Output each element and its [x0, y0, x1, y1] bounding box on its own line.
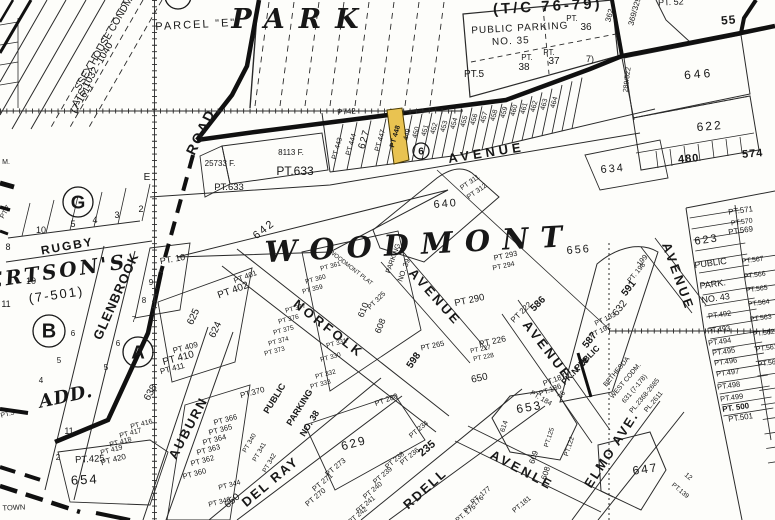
map-label-36: 36 — [580, 22, 592, 33]
map-label-pt-330: PT 330 — [320, 351, 342, 363]
map-label-pt-571: PT.571 — [728, 204, 754, 216]
map-label-11: 11 — [1, 299, 10, 309]
parcel-divider-line — [763, 414, 775, 420]
map-label-pt-265: PT 265 — [420, 339, 445, 353]
map-label-625: 625 — [185, 307, 202, 327]
map-label-4: 4 — [92, 215, 97, 225]
map-label-pt-294: PT 294 — [492, 261, 516, 273]
map-label-pt-562: PT.562 — [753, 329, 775, 339]
parcel-divider-line — [532, 92, 542, 138]
map-label-public: PUBLIC — [261, 381, 287, 415]
map-label-pt-563: PT.563 — [750, 314, 773, 324]
map-label-623: 623 — [694, 232, 720, 247]
map-label-m: M. — [2, 159, 10, 166]
map-label-627: 627 — [357, 128, 373, 150]
map-label-624: 624 — [207, 320, 224, 340]
map-label-629: 629 — [340, 433, 369, 453]
survey-circle-letter: G — [71, 191, 86, 212]
map-label-11: 11 — [64, 426, 73, 436]
map-label-pt-447: PT 447 — [374, 129, 387, 153]
survey-circle-letter: B — [42, 321, 56, 343]
map-label-public: PUBLIC — [694, 256, 728, 270]
map-label-pt-560: PT.560 — [758, 359, 775, 369]
map-label-5: 5 — [104, 363, 109, 372]
map-label-e: E — [144, 172, 151, 183]
map-labels: SSEX HOUSE CONDM.ATS 1032 -1040(7-161)PA… — [0, 0, 775, 520]
map-label-pt-181: PT.181 — [511, 495, 532, 514]
map-label-woodmont: WOODMONT — [264, 219, 575, 269]
map-label-pt-633: PT.633 — [214, 182, 244, 193]
map-label-451: 451 — [421, 124, 431, 137]
map-label-591: 591 — [620, 278, 639, 298]
map-label-634: 634 — [600, 162, 625, 176]
map-label-646: 646 — [684, 66, 714, 82]
map-label-586: 586 — [528, 294, 548, 314]
map-label-pt-493: PT.493 — [706, 323, 730, 335]
map-label-pt-402: PT 402 — [216, 280, 250, 301]
map-label-parcel-e: PARCEL "E" — [155, 17, 237, 33]
survey-circle-letter: A — [131, 341, 145, 362]
map-label-pt-566: PT.566 — [744, 271, 767, 281]
map-label-6: 6 — [71, 329, 76, 338]
map-label-pt-443: PT 443 — [331, 137, 344, 161]
map-label-pt-496: PT.496 — [713, 355, 737, 367]
map-label-pt-10: PT. 10 — [159, 252, 186, 266]
map-label-38: 38 — [518, 62, 530, 73]
parcel-divider-line — [572, 78, 582, 129]
map-label-pt-360: PT 360 — [182, 466, 208, 481]
map-label-450: 450 — [412, 126, 422, 139]
map-label-pt-290: PT 290 — [453, 292, 485, 309]
map-label-10: 10 — [36, 225, 46, 235]
map-label-park: PARK — [230, 4, 372, 35]
map-label-650: 650 — [470, 371, 489, 385]
map-label-25733-f: 25733 F. — [205, 159, 236, 168]
parcel-divider-line — [542, 89, 552, 136]
map-label-avenue: AVENUE — [447, 139, 526, 166]
parcel-divider-line — [405, 2, 419, 106]
map-label-235: 235 — [416, 438, 438, 459]
plat-map-canvas: GBA6 SSEX HOUSE CONDM.ATS 1032 -1040(7-1… — [0, 0, 775, 520]
map-label-7-501: (7-501) — [28, 283, 85, 306]
map-label-369-329: 369/329 — [626, 0, 642, 26]
map-label-pt-561: PT.561 — [756, 344, 775, 354]
map-label-public-parking: PUBLIC PARKING — [471, 20, 569, 36]
map-label-654: 654 — [71, 471, 99, 487]
map-label-8: 8 — [142, 296, 147, 305]
map-label-7: 7 — [132, 315, 137, 324]
map-label-622: 622 — [696, 118, 723, 134]
map-label-2: 2 — [138, 204, 143, 214]
map-label-elmo-ave: ELMO AVE. — [581, 409, 642, 491]
map-label-pt-497: PT.497 — [715, 366, 739, 378]
map-label-pt-501: PT.501 — [728, 411, 754, 423]
parcel-divider-line — [766, 443, 775, 449]
map-label-7: 7) — [586, 54, 594, 64]
survey-circle-letter: 6 — [418, 146, 424, 157]
map-label-pt-565: PT.565 — [746, 285, 769, 295]
map-label-pt-125: PT.125 — [543, 426, 556, 448]
map-label-55: 55 — [720, 12, 737, 27]
parcel-divider-line — [430, 2, 444, 106]
map-label-pt-239: PT 239 — [372, 466, 394, 486]
map-label-pt-325: PT 325 — [367, 290, 388, 311]
map-label-480: 480 — [678, 152, 700, 166]
map-label-pt-375: PT 375 — [273, 324, 295, 336]
map-label-6: 6 — [116, 339, 121, 348]
map-label-pt-359: PT 359 — [302, 283, 324, 295]
map-label-pt-344: PT 344 — [218, 479, 242, 492]
map-label-pt: PT. — [566, 14, 578, 23]
map-label-12: 12 — [683, 472, 694, 482]
map-label-8113-f: 8113 F. — [278, 148, 304, 157]
map-label-pt: PT. — [521, 53, 533, 62]
map-label-4: 4 — [39, 376, 44, 385]
map-label-pt-567: PT.567 — [742, 256, 765, 266]
map-label-8: 8 — [5, 242, 10, 252]
map-label-2: 2 — [56, 453, 61, 462]
map-label-avenue: AVENUE — [659, 240, 697, 312]
map-label-609: 609 — [527, 449, 540, 465]
map-label-pt-333: PT 333 — [310, 378, 332, 390]
map-label-pt-5: PT.5 — [464, 69, 484, 80]
map-label-452: 452 — [430, 122, 440, 135]
map-label-rdell: RDELL — [400, 465, 450, 512]
parcel-divider-line — [768, 457, 775, 463]
map-label-3: 3 — [114, 210, 119, 220]
map-label-574: 574 — [742, 147, 764, 161]
parcel-divider-line — [380, 2, 394, 106]
map-label-pt-122: PT.122 — [563, 435, 576, 457]
map-label-pt-341: PT 341 — [251, 441, 268, 463]
map-label-598: 598 — [405, 350, 424, 370]
map-label-pt-444: PT 444 — [345, 133, 358, 157]
map-label-9: 9 — [149, 278, 154, 287]
map-label-5: 5 — [70, 219, 75, 229]
map-label-pt-564: PT.564 — [748, 299, 771, 309]
map-label-608: 608 — [373, 317, 388, 335]
map-label-5: 5 — [57, 356, 62, 365]
map-label-pt-633: PT.633 — [276, 164, 314, 178]
map-label-t-c-76-79: (T/C 76-79) — [493, 0, 603, 18]
map-label-pt-373: PT 373 — [264, 345, 286, 357]
map-label-pt-360: PT 360 — [305, 273, 327, 285]
map-label-pt-139: PT.139 — [670, 482, 690, 501]
map-label-pt-234: PT 234 — [408, 420, 430, 440]
map-label-10: 10 — [26, 276, 36, 286]
parcel-divider-line — [562, 81, 572, 131]
map-label-453: 453 — [440, 120, 450, 133]
map-label-614: 614 — [499, 420, 509, 433]
map-label-464: 464 — [550, 96, 560, 109]
map-label-647: 647 — [632, 460, 660, 477]
map-label-638: 638 — [142, 382, 160, 402]
map-label-640: 640 — [433, 197, 458, 211]
map-label-park: PARK. — [699, 277, 726, 291]
plat-map: GBA6 SSEX HOUSE CONDM.ATS 1032 -1040(7-1… — [0, 0, 775, 520]
map-label-p742: P742- — [337, 106, 359, 116]
parcel-divider-line — [761, 399, 775, 405]
map-label-no-35: NO. 35 — [492, 35, 530, 48]
map-label-656: 656 — [566, 243, 591, 257]
map-label-37: 37 — [548, 56, 560, 67]
map-label-pt-498: PT.498 — [716, 379, 740, 391]
map-label-pt-52: PT. 52 — [658, 0, 684, 8]
map-label-town: TOWN — [2, 502, 25, 512]
map-label-pt-492: PT.492 — [707, 308, 731, 320]
survey-circle — [165, 0, 191, 9]
